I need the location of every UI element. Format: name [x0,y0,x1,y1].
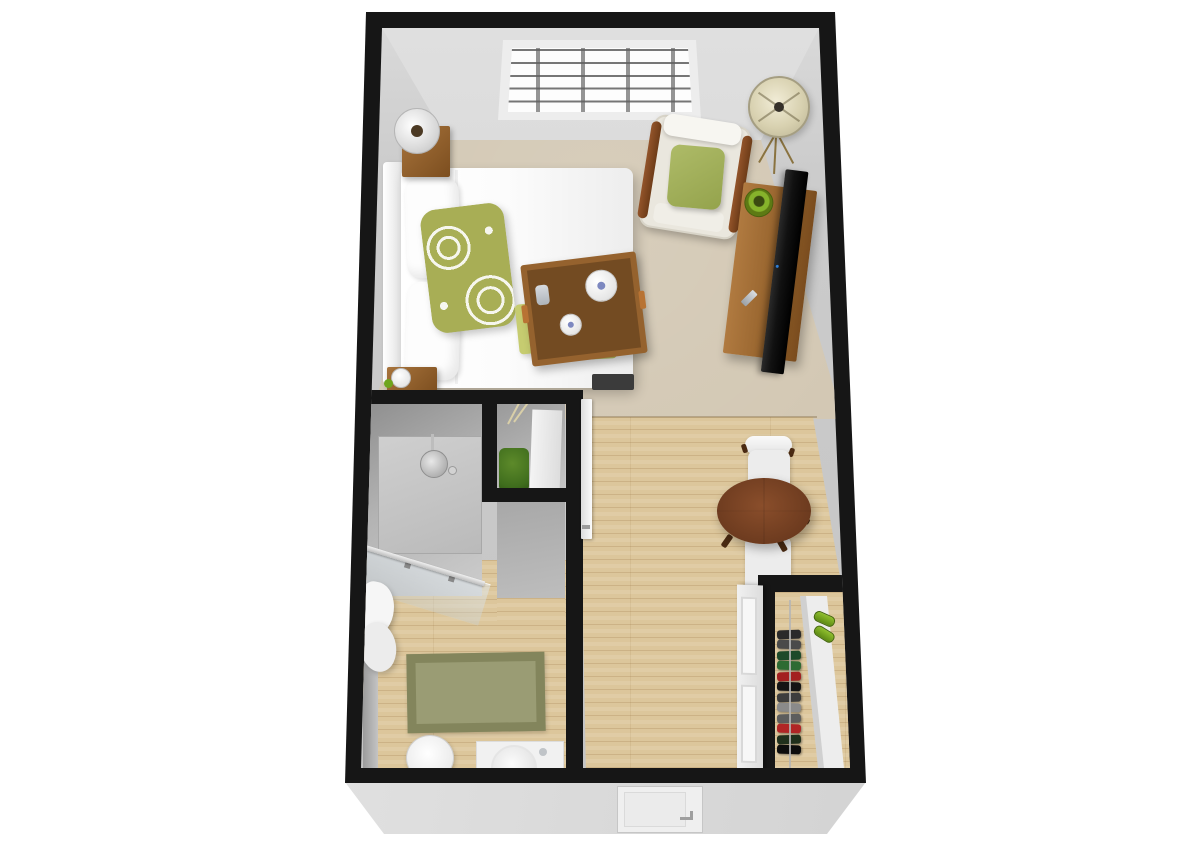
teapot [583,268,619,304]
teapot-motif [597,281,606,290]
bathroom-door [581,399,592,539]
teacup [559,312,584,337]
shoe [812,624,836,645]
entry-door-panel [624,792,686,827]
alcove-floor [497,598,565,622]
green-damask-pillow [419,201,517,334]
floor-lamp-shade [748,76,810,138]
plant-sprig [384,379,393,388]
closet-door-panel [741,597,757,676]
green-basket [499,448,529,492]
table-lamp [394,108,440,154]
sink-faucet [539,748,547,756]
creamer [535,284,550,305]
bathroom-partition-wall [482,390,497,502]
table-lamp-finial [411,125,423,137]
tv-power-led [776,265,779,268]
bed-foot-bench [592,374,634,390]
closet-rod [789,600,791,768]
closet-door-panel [741,685,757,764]
entry-door [617,786,703,833]
carpet-wood-transition [579,416,817,418]
teacup-motif [567,321,574,328]
water-glass [391,368,411,388]
niche-shelf [530,410,563,491]
serving-tray [520,251,648,366]
sink [476,741,564,770]
armchair [638,113,753,241]
entry-door-handle-post [690,811,693,820]
tray-handle [521,305,529,324]
bath-rug [406,652,545,733]
lamp-bulb [774,102,784,112]
dining-table [717,478,811,544]
decorative-green-bowl [743,186,775,218]
bathroom-wall [354,390,583,404]
armchair-green-pillow [666,144,725,210]
apartment-interior [0,0,1200,848]
bathroom-door-handle [582,525,590,529]
shower-knob [448,466,457,475]
floorplan-stage [0,0,1200,848]
sink-basin [491,745,537,770]
bathroom-partition-wall [482,488,566,502]
tv-remote [741,290,758,307]
shower-head [420,450,448,478]
closet-sliding-doors [737,585,763,778]
